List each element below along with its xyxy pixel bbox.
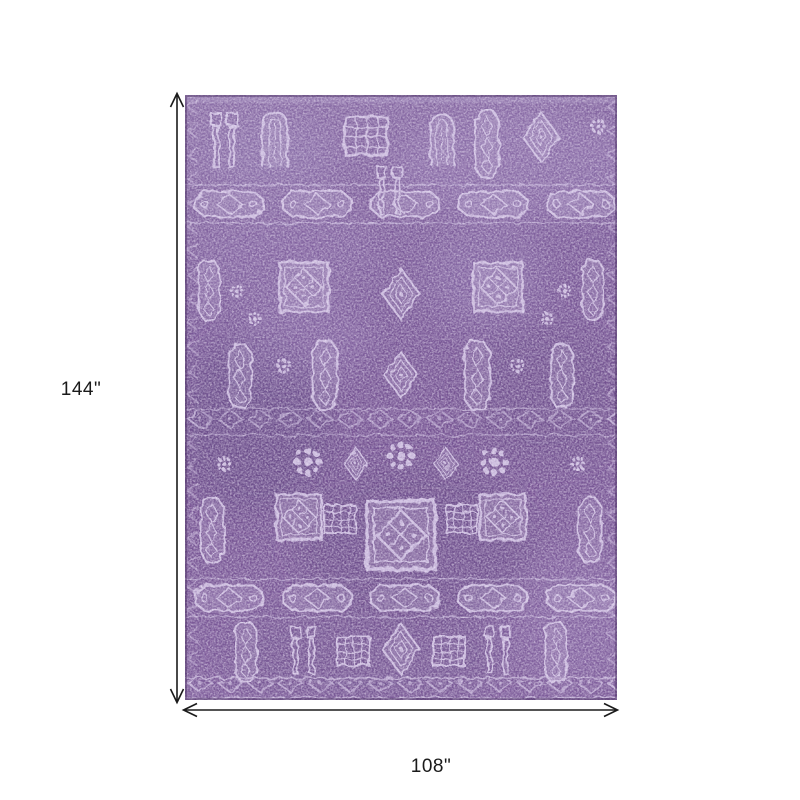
rug-texture [185, 95, 617, 700]
rug-image [185, 95, 617, 700]
height-dimension-label: 144" [48, 379, 114, 401]
rug-svg [185, 95, 617, 700]
product-dimension-diagram: 144" 108" [0, 0, 800, 800]
width-arrowhead-left-icon [184, 704, 198, 717]
width-dimension-label: 108" [398, 756, 464, 778]
height-arrowhead-bottom-icon [171, 689, 184, 703]
height-arrowhead-top-icon [171, 94, 184, 108]
width-arrowhead-right-icon [604, 704, 618, 717]
